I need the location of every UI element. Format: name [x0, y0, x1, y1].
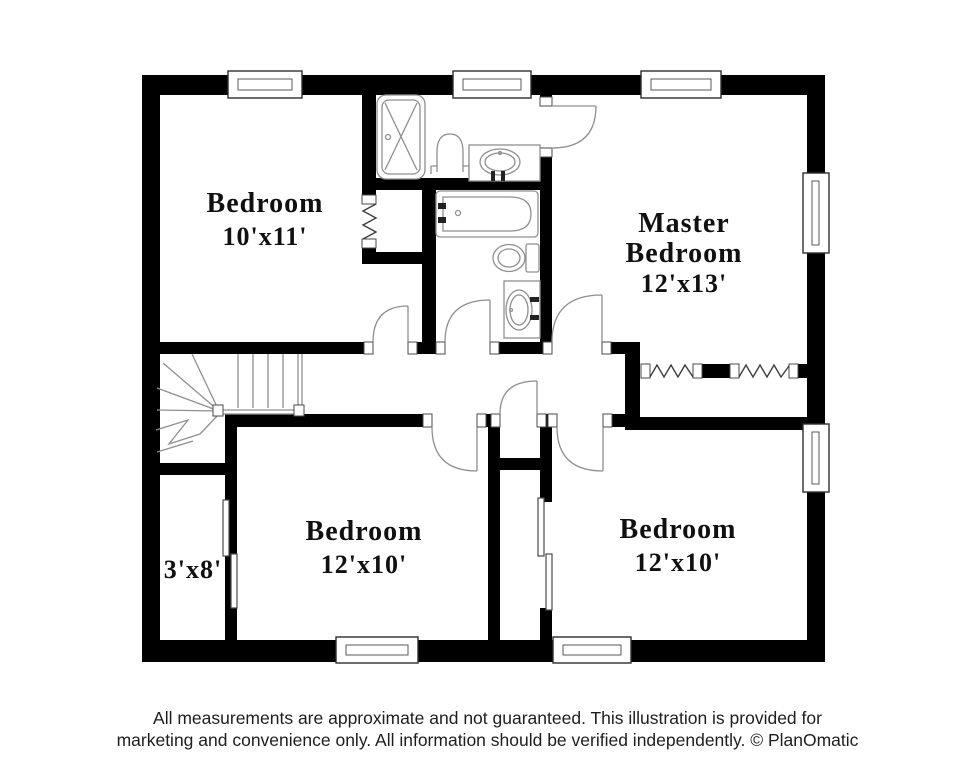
stair-newel-post — [213, 405, 223, 416]
vanity-sink-icon — [469, 145, 540, 181]
door-arc-bedroom3 — [557, 427, 603, 471]
window-icon — [453, 71, 531, 98]
door-arc-master-bedroom — [552, 295, 602, 342]
room-label-bedroom2: Bedroom — [306, 516, 423, 547]
shower-icon — [377, 95, 425, 179]
sliding-door-icon — [223, 500, 229, 556]
disclaimer-line1: All measurements are approximate and not… — [0, 707, 975, 729]
bathtub-icon — [436, 191, 538, 237]
stair-break-line — [156, 420, 200, 444]
sliding-door-icon — [546, 554, 552, 610]
stair-winders — [157, 354, 219, 411]
window-icon — [336, 637, 418, 663]
window-icon — [803, 173, 829, 253]
stair-handrail — [216, 410, 303, 414]
room-label-master-line2: Bedroom — [626, 238, 743, 269]
disclaimer-line2: marketing and convenience only. All info… — [0, 729, 975, 751]
floor-plan-page: Bedroom 10'x11' Master Bedroom 12'x13' 3… — [0, 0, 975, 768]
accordion-door-icon — [363, 204, 376, 239]
wall-left — [142, 75, 160, 662]
room-dims-bedroom3: 12'x10' — [635, 548, 721, 577]
door-arc-bathroom — [445, 300, 490, 342]
upper-bathroom-fixtures — [377, 95, 540, 181]
door-arc-linen-closet — [500, 381, 537, 414]
window-icon — [641, 71, 721, 98]
sliding-door-icon — [538, 498, 544, 556]
room-dims-bedroom1: 10'x11' — [222, 222, 307, 251]
room-dims-closet: 3'x8' — [164, 555, 222, 584]
accordion-door-icon — [739, 365, 789, 377]
wall-right — [807, 75, 825, 662]
sliding-door-icon — [231, 554, 237, 608]
stair-newel-post — [294, 405, 304, 416]
door-arc-bedroom1 — [373, 306, 408, 342]
vanity-sink-icon — [504, 281, 540, 338]
room-label-bedroom3: Bedroom — [620, 514, 737, 545]
door-arc-bedroom2 — [432, 427, 477, 471]
room-dims-master: 12'x13' — [641, 269, 727, 298]
door-arc-master-bath — [552, 106, 596, 148]
window-icon — [228, 71, 302, 98]
disclaimer: All measurements are approximate and not… — [0, 707, 975, 751]
room-labels: Bedroom 10'x11' Master Bedroom 12'x13' 3… — [164, 188, 743, 584]
toilet-icon — [431, 134, 469, 174]
accordion-door-icon — [650, 365, 693, 377]
floor-plan: Bedroom 10'x11' Master Bedroom 12'x13' 3… — [0, 0, 975, 705]
window-icon — [553, 637, 631, 663]
room-label-master-line1: Master — [638, 208, 730, 239]
toilet-icon — [493, 244, 539, 272]
wall-bottom — [142, 640, 825, 662]
room-label-bedroom1: Bedroom — [207, 188, 324, 219]
window-icon — [803, 424, 829, 492]
room-dims-bedroom2: 12'x10' — [321, 550, 407, 579]
